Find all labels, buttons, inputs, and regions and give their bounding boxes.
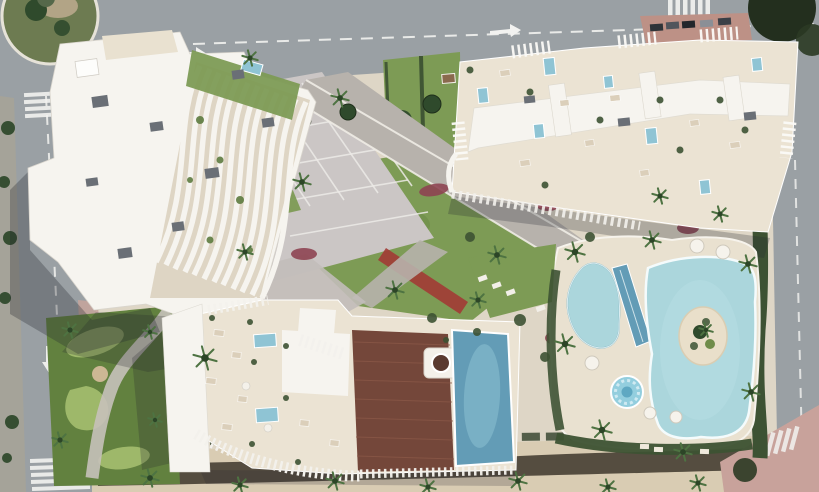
pool-shrub [585,232,595,242]
plunge-pool [543,57,556,75]
parked-car [682,21,695,29]
plunge-pool [256,407,279,423]
terrace-furniture [520,159,531,166]
terrace-furniture [330,440,339,447]
terrace-furniture [610,94,621,101]
rooftop-box-white [75,59,99,78]
terrace-plant [196,116,204,124]
sun-lounger [654,447,663,452]
terrace-furniture [238,396,247,403]
island-shrub [690,342,698,350]
parked-car [666,22,679,30]
pool-shrub [514,314,526,326]
rooftop-unit [117,247,132,259]
garden-dining-table [442,73,456,83]
sun-umbrella [644,407,656,419]
parked-car [718,18,731,26]
terrace-furniture [206,378,216,385]
terrace-planter [717,97,724,104]
roundabout-tree [54,20,70,36]
terrace-plant [283,343,289,349]
terrace-plant [217,157,224,164]
rooftop-unit [232,69,245,80]
building-c-white-roof [282,330,350,396]
sun-umbrella [585,356,599,370]
sun-lounger [640,444,649,449]
rooftop-unit [618,117,631,126]
pool-shrub [473,328,481,336]
building-c-white-roof [298,308,336,334]
terrace-furniture [214,330,224,337]
rooftop-unit [86,177,99,187]
terrace-planter [597,117,604,124]
plunge-pool [751,58,762,72]
terrace-planter [542,182,549,189]
street-tree [423,95,441,113]
terrace-table [264,424,272,432]
terrace-planter [467,67,474,74]
pool-shrub [427,313,437,323]
pool-shrub [465,232,475,242]
sun-umbrella [670,411,682,423]
aerial-render-figure: Aerial top-down rendering of a coastal r… [0,0,819,492]
rooftop-unit [744,111,757,120]
terrace-plant [295,459,301,465]
terrace-furniture [232,352,241,359]
island-shrub [705,339,715,349]
terrace-furniture [300,420,309,427]
deck-pavilion-center [432,354,450,372]
minigolf-bunker [92,366,108,382]
plunge-pool [645,127,658,144]
sun-lounger [700,449,709,454]
terrace-plant [187,177,193,183]
terrace-planter [527,89,534,96]
building-c-west-band [162,304,210,472]
terrace-planter [657,97,664,104]
parked-car [650,24,663,32]
plunge-pool [699,180,710,195]
terrace-plant [251,359,257,365]
terrace-plant [236,196,244,204]
terrace-planter [742,127,749,134]
terrace-planter [677,147,684,154]
island-shrub [702,318,710,326]
aerial-render-canvas [0,0,819,492]
sun-umbrella [716,245,730,259]
terrace-furniture [730,141,741,148]
rooftop-unit [524,95,536,103]
terrace-furniture [560,99,570,106]
rooftop-unit [91,95,108,108]
terrace-plant [247,319,253,325]
flower-bed [291,248,317,260]
plunge-pool [477,88,489,104]
plunge-pool [254,333,277,348]
verge-tree [2,453,12,463]
terrace-plant [209,315,215,321]
terrace-furniture [222,424,232,431]
terrace-plant [249,441,255,447]
rooftop-unit [262,117,275,128]
sun-umbrella [690,239,704,253]
terrace-plant [443,337,449,343]
terrace-furniture [640,169,650,176]
terrace-table [242,382,250,390]
plunge-pool [603,76,613,89]
pool-shrub [540,352,550,362]
terrace-furniture [500,69,511,76]
plunge-pool [533,124,544,139]
rooftop-unit [204,167,219,179]
terrace-furniture [690,119,700,126]
terrace-plant [283,395,289,401]
spa-pool-center [622,387,633,398]
verge-tree [5,415,19,429]
verge-tree [1,121,15,135]
rooftop-unit [150,121,164,132]
rooftop-unit [172,221,185,232]
corner-tree-br [733,458,757,482]
parked-car [700,20,713,28]
terrace-plant [207,237,214,244]
terrace-furniture [585,139,595,146]
